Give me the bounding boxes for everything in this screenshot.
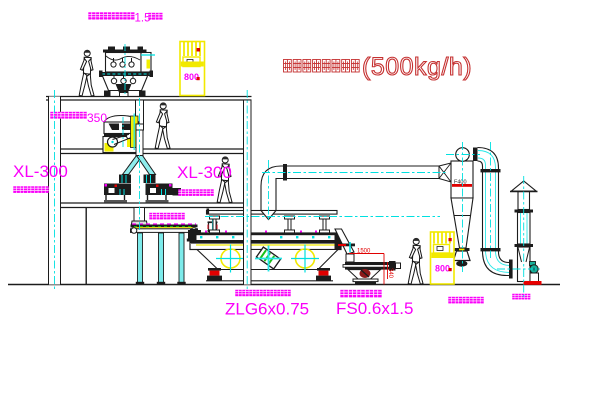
svg-text:F400: F400: [454, 180, 467, 186]
svg-text:800: 800: [435, 264, 450, 274]
svg-text:1500: 1500: [357, 249, 371, 255]
svg-text:XL-300: XL-300: [177, 163, 232, 182]
svg-text:350: 350: [87, 111, 107, 125]
svg-text:FS0.6x1.5: FS0.6x1.5: [336, 299, 414, 318]
svg-text:ZLG6x0.75: ZLG6x0.75: [225, 300, 309, 319]
svg-text:(500kg/h): (500kg/h): [362, 53, 472, 81]
svg-text:340: 340: [387, 268, 393, 279]
svg-text:1.5: 1.5: [135, 13, 151, 25]
svg-text:XL-300: XL-300: [13, 162, 68, 181]
